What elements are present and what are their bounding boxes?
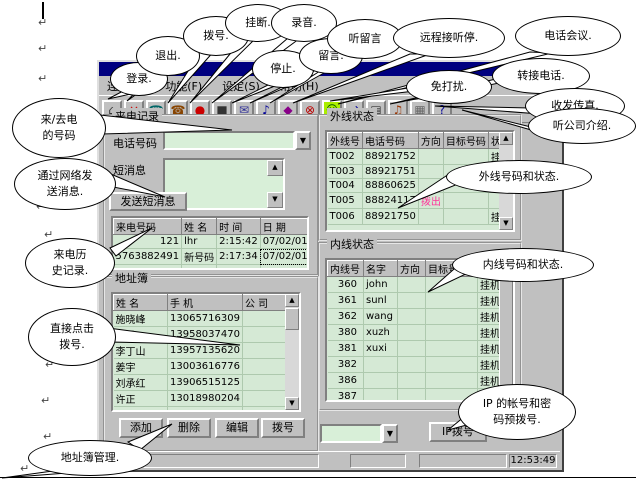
table-cell: sunl	[364, 293, 398, 309]
table-cell: 360	[328, 277, 364, 293]
table-row[interactable]: 5763882491新号码2:17:3407/02/01	[114, 249, 310, 265]
status-panel	[350, 454, 406, 468]
call-record-group: 来电记录 电话号码 ▼ 短消息 ▲ ▼ 发送短消息 来电号码姓 名时 间日 期 …	[103, 114, 319, 276]
table-cell: T005	[328, 193, 363, 209]
table-row[interactable]: 382挂机	[328, 357, 504, 373]
table-cell: 李丁山	[114, 343, 168, 359]
callout-click-dial: 直接点击 拨号.	[28, 308, 116, 366]
table-cell	[443, 193, 488, 209]
table-row[interactable]: 362wang挂机	[328, 309, 504, 325]
table-cell	[398, 277, 426, 293]
scroll-down-icon[interactable]: ▼	[499, 217, 513, 230]
status-bar: 12:53:49	[101, 451, 560, 468]
edit-button[interactable]: 编辑	[215, 418, 259, 438]
callout-caller-number: 来/去电 的号码	[12, 98, 106, 158]
table-row[interactable]: 施晓峰13065716309	[114, 311, 291, 327]
table-cell	[398, 341, 426, 357]
callout-remote-answer: 远程接听停.	[393, 18, 505, 58]
column-header[interactable]: 公 司	[243, 295, 291, 311]
ip-account-combo[interactable]: ▼	[320, 424, 398, 443]
table-cell: xuzh	[364, 325, 398, 341]
table-cell	[364, 389, 398, 403]
table-cell: 13958037470	[168, 327, 243, 343]
table-row[interactable]: 380xuzh挂机	[328, 325, 504, 341]
table-row[interactable]: 121lhr2:15:4207/02/01	[114, 235, 310, 249]
phone-number-label: 电话号码	[113, 135, 157, 151]
table-cell: 386	[328, 373, 364, 389]
table-cell: 88824117	[363, 193, 419, 209]
ip-account-field[interactable]	[320, 424, 382, 443]
delete-button[interactable]: 删除	[167, 418, 211, 438]
call-history-table[interactable]: 来电号码姓 名时 间日 期 121lhr2:15:4207/02/0157638…	[111, 216, 309, 270]
status-panel	[143, 454, 319, 468]
table-cell	[443, 209, 488, 225]
table-row[interactable]: 刘承红13906515125	[114, 375, 291, 391]
table-cell: 381	[328, 341, 364, 357]
menu-function[interactable]: 功能(F)	[163, 78, 204, 94]
sms-label: 短消息	[113, 162, 146, 178]
callout-listen-voicemail: 听留言	[327, 19, 403, 59]
column-header[interactable]: 姓 名	[114, 295, 168, 311]
table-cell: 382	[328, 357, 364, 373]
table-cell	[243, 375, 291, 391]
callout-conference: 电话会议.	[515, 16, 621, 56]
group-title: 内线状态	[327, 236, 377, 252]
table-cell: lhr	[182, 235, 217, 249]
table-cell: 121	[114, 235, 182, 249]
column-header[interactable]: 内线号	[328, 261, 364, 277]
table-cell: 07/02/01	[260, 249, 309, 265]
table-cell: 2:17:34	[217, 249, 261, 265]
group-title: 地址簿	[112, 270, 151, 286]
callout-net-message: 通过网络发 送消息.	[14, 158, 116, 210]
table-cell: 88921750	[363, 209, 419, 225]
table-cell: 88921751	[363, 165, 419, 179]
table-cell: 刘承红	[114, 375, 168, 391]
paragraph-mark: ↵	[38, 72, 47, 85]
table-cell	[426, 341, 478, 357]
group-title: 外线状态	[327, 108, 377, 124]
table-cell	[398, 357, 426, 373]
table-cell: xuxi	[364, 341, 398, 357]
column-header[interactable]: 目标号码	[443, 133, 488, 149]
callout-do-not-disturb: 免打扰.	[406, 70, 492, 104]
callout-ip-account-dial: IP 的帐号和密 码预拨号.	[458, 384, 576, 440]
table-cell	[418, 209, 443, 225]
column-header[interactable]: 手 机	[168, 295, 243, 311]
paragraph-mark: ↵	[38, 42, 47, 55]
scroll-down-icon[interactable]: ▼	[285, 397, 299, 410]
table-cell: 姜宇	[114, 359, 168, 375]
dial-button[interactable]: 拨号	[261, 418, 305, 438]
table-cell	[426, 325, 478, 341]
table-cell: 07/02/01	[260, 265, 309, 271]
dropdown-arrow-icon[interactable]: ▼	[295, 131, 311, 150]
table-cell: 星际网络	[243, 407, 291, 413]
table-cell: 13018980204	[168, 391, 243, 407]
paragraph-mark: ↵	[20, 462, 29, 475]
table-cell: 2:20:53	[217, 265, 261, 271]
column-header[interactable]: 来电号码	[114, 219, 182, 235]
table-row[interactable]: 386挂机	[328, 373, 504, 389]
table-cell: T003	[328, 165, 363, 179]
column-header[interactable]: 名字	[364, 261, 398, 277]
send-sms-button[interactable]: 发送短消息	[109, 192, 187, 211]
table-cell	[364, 357, 398, 373]
table-cell: 5763882491	[114, 249, 182, 265]
table-cell: 拨出	[418, 193, 443, 209]
table-cell: 高民	[114, 327, 168, 343]
table-row[interactable]: 李丁山13957135620	[114, 343, 291, 359]
table-cell: 88860625	[363, 179, 419, 193]
table-cell	[426, 309, 478, 325]
column-header[interactable]: 时 间	[217, 219, 261, 235]
table-cell: 许正	[114, 391, 168, 407]
group-title: 来电记录	[112, 108, 162, 124]
phone-number-combo[interactable]: ▼	[163, 131, 311, 150]
table-cell	[418, 165, 443, 179]
table-cell	[243, 311, 291, 327]
table-row[interactable]: 高民13958037470	[114, 327, 291, 343]
add-button[interactable]: 添加	[119, 418, 163, 438]
table-cell	[426, 357, 478, 373]
table-cell	[398, 389, 426, 403]
table-row[interactable]: 361sunl挂机	[328, 293, 504, 309]
table-cell: 380	[328, 325, 364, 341]
table-cell: 13957135620	[168, 343, 243, 359]
scroll-up-icon[interactable]: ▲	[267, 160, 283, 176]
table-cell	[243, 327, 291, 343]
table-cell: 13065716309	[168, 311, 243, 327]
scroll-down-icon[interactable]: ▼	[267, 192, 283, 208]
table-cell: 新号码	[182, 249, 217, 265]
clock: 12:53:49	[509, 454, 557, 468]
scrollbar-thumb[interactable]	[285, 308, 299, 330]
table-cell	[418, 149, 443, 165]
table-cell	[364, 373, 398, 389]
table-cell	[398, 293, 426, 309]
table-cell	[426, 293, 478, 309]
callout-external-status: 外线号码和状态.	[446, 160, 592, 194]
paragraph-mark: ↵	[41, 394, 50, 407]
table-cell: 施晓峰	[114, 311, 168, 327]
paragraph-mark: ↵	[43, 430, 52, 443]
addressbook-group: 地址簿 姓 名手 机公 司 施晓峰13065716309高民1395803747…	[103, 276, 319, 452]
table-row[interactable]: 徐翔13018955581星际网络	[114, 407, 291, 413]
page-boundary-line	[0, 477, 636, 478]
callout-call-history: 来电历 史记录.	[25, 238, 115, 288]
table-row[interactable]: 381xuxi挂机	[328, 341, 504, 357]
table-cell	[398, 373, 426, 389]
table-cell: T002	[328, 149, 363, 165]
addressbook-table[interactable]: 姓 名手 机公 司 施晓峰13065716309高民13958037470李丁山…	[111, 292, 301, 412]
dropdown-arrow-icon[interactable]: ▼	[382, 424, 398, 443]
table-cell: 362	[328, 309, 364, 325]
table-cell	[426, 277, 478, 293]
table-cell: T004	[328, 179, 363, 193]
table-cell: 88921752	[363, 149, 419, 165]
column-header[interactable]: 方向	[398, 261, 426, 277]
table-cell	[418, 179, 443, 193]
table-cell	[243, 343, 291, 359]
column-header[interactable]: 外线号	[328, 133, 363, 149]
table-cell: 13906515125	[168, 375, 243, 391]
column-header[interactable]: 日 期	[260, 219, 309, 235]
phone-number-field[interactable]	[163, 131, 295, 150]
callout-company-intro: 听公司介绍.	[528, 108, 636, 144]
table-cell	[243, 359, 291, 375]
table-cell: 387	[328, 389, 364, 403]
column-header[interactable]: 姓 名	[182, 219, 217, 235]
table-cell: 361	[328, 293, 364, 309]
menu-settings[interactable]: 设定(S)	[220, 78, 262, 94]
status-panel	[419, 454, 507, 468]
column-header[interactable]: 电话号码	[363, 133, 419, 149]
table-cell	[398, 325, 426, 341]
table-cell: 13003616776	[168, 359, 243, 375]
table-cell: 13018955581	[168, 407, 243, 413]
table-cell: 07/02/01	[260, 235, 309, 249]
table-row[interactable]: 许正13018980204	[114, 391, 291, 407]
scroll-up-icon[interactable]: ▲	[499, 132, 513, 145]
paragraph-mark: ↵	[38, 16, 47, 29]
scrollbar[interactable]: ▲ ▼	[285, 294, 299, 410]
callout-internal-status: 内线号码和状态.	[452, 248, 594, 282]
table-cell: wang	[364, 309, 398, 325]
column-header[interactable]: 方向	[418, 133, 443, 149]
table-row[interactable]: T00688921750挂机	[328, 209, 514, 225]
table-cell: john	[364, 277, 398, 293]
table-cell: 2:15:42	[217, 235, 261, 249]
scrollbar-thumb[interactable]	[499, 274, 513, 386]
table-row[interactable]: 360john挂机	[328, 277, 504, 293]
scroll-up-icon[interactable]: ▲	[285, 294, 299, 307]
callout-addressbook-manage: 地址簿管理.	[28, 440, 152, 476]
table-cell	[243, 391, 291, 407]
table-row[interactable]: 姜宇13003616776	[114, 359, 291, 375]
table-cell: T006	[328, 209, 363, 225]
table-cell: 新号码	[182, 265, 217, 271]
table-cell: 徐翔	[114, 407, 168, 413]
table-cell	[426, 373, 478, 389]
table-cell	[398, 309, 426, 325]
table-row[interactable]: T00588824117拨出	[328, 193, 514, 209]
